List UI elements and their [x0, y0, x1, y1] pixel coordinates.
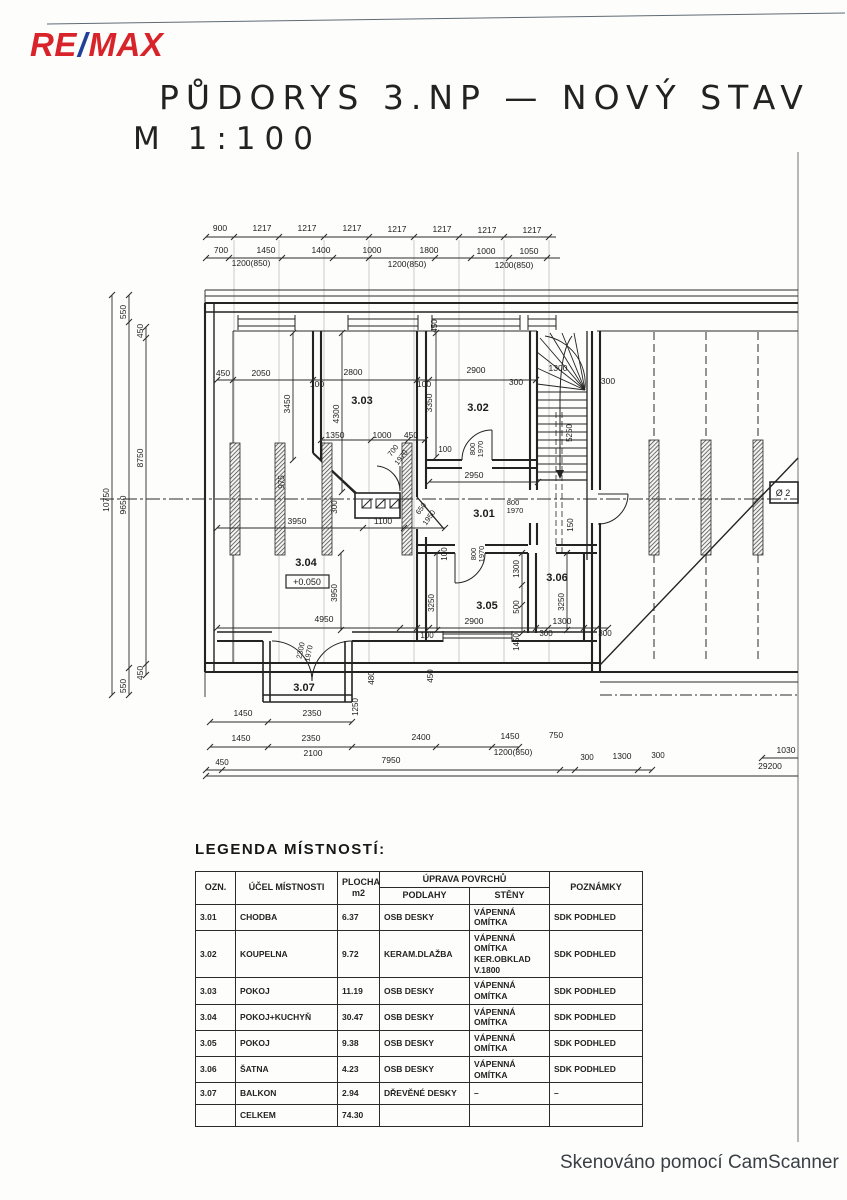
dim-label: 1217 [343, 223, 362, 233]
dim-label: 975 [277, 475, 286, 489]
col-header-uprava: ÚPRAVA POVRCHŮ [380, 872, 550, 888]
table-cell: 30.47 [338, 1004, 380, 1030]
dim-label: 1200(850) [494, 747, 533, 757]
table-row: 3.02KOUPELNA9.72KERAM.DLAŽBAVÁPENNÁ OMÍT… [196, 930, 643, 978]
dim-label: 1217 [523, 225, 542, 235]
dim-label: 1300 [512, 560, 521, 578]
table-row: CELKEM74.30 [196, 1105, 643, 1127]
room-label: 3.07 [293, 682, 314, 694]
table-cell: VÁPENNÁ OMÍTKA KER.OBKLAD V.1800 [470, 930, 550, 978]
room-label: 3.06 [546, 572, 567, 584]
dim-label: 300 [651, 751, 665, 760]
dim-label: +0.050 [293, 577, 321, 587]
dim-label: 2350 [302, 733, 321, 743]
col-header-poznamky: POZNÁMKY [550, 872, 643, 905]
room-label: 3.04 [295, 557, 317, 569]
dim-label: 450 [404, 430, 418, 440]
dim-label: 550 [118, 305, 128, 319]
dim-label: 300 [330, 500, 339, 514]
table-cell: BALKON [236, 1083, 338, 1105]
dim-label: 1350 [326, 430, 345, 440]
table-cell: 6.37 [338, 904, 380, 930]
dim-label: 450 [216, 368, 230, 378]
dim-label: 1970 [507, 506, 524, 515]
table-cell: OSB DESKY [380, 1057, 470, 1083]
room-label: 3.02 [467, 402, 488, 414]
dim-label: 450 [426, 669, 435, 683]
dim-label: 1200(850) [232, 258, 271, 268]
room-label: 3.03 [351, 395, 372, 407]
table-cell: SDK PODHLED [550, 930, 643, 978]
table-cell: 3.07 [196, 1083, 236, 1105]
table-cell [196, 1105, 236, 1127]
table-cell: POKOJ [236, 1030, 338, 1056]
legend-table: OZN. ÚČEL MÍSTNOSTI PLOCHA m2 ÚPRAVA POV… [195, 871, 643, 1127]
dim-label: 300 [598, 629, 612, 638]
dim-label: 100 [420, 631, 434, 640]
dim-label: 1000 [363, 245, 382, 255]
dim-label: 3350 [424, 393, 434, 412]
dim-label: 1217 [433, 224, 452, 234]
col-header-ozn: OZN. [196, 872, 236, 905]
dim-label: 300 [601, 376, 615, 386]
table-cell: 3.03 [196, 978, 236, 1004]
table-cell: POKOJ+KUCHYŇ [236, 1004, 338, 1030]
table-cell: VÁPENNÁ OMÍTKA [470, 1057, 550, 1083]
dim-label: 450 [135, 324, 145, 338]
table-cell: VÁPENNÁ OMÍTKA [470, 978, 550, 1004]
room-label: 3.05 [476, 600, 497, 612]
table-cell: OSB DESKY [380, 904, 470, 930]
table-cell: 3.01 [196, 904, 236, 930]
col-header-podlahy: PODLAHY [380, 888, 470, 904]
dim-label: 1030 [777, 745, 796, 755]
dim-label: 3950 [330, 584, 339, 602]
dim-label: 2900 [465, 616, 484, 626]
table-cell: SDK PODHLED [550, 978, 643, 1004]
table-cell: CELKEM [236, 1105, 338, 1127]
table-cell: SDK PODHLED [550, 1057, 643, 1083]
dim-label: 300 [580, 753, 594, 762]
table-cell: OSB DESKY [380, 1004, 470, 1030]
dim-label: 2050 [252, 368, 271, 378]
dim-label: 4300 [331, 404, 341, 423]
table-cell: 2.94 [338, 1083, 380, 1105]
dim-label: 450 [215, 758, 229, 767]
dim-label: 1970 [476, 441, 485, 458]
dim-label: 100 [438, 445, 452, 454]
table-cell: POKOJ [236, 978, 338, 1004]
table-cell: VÁPENNÁ OMÍTKA [470, 1030, 550, 1056]
table-cell: OSB DESKY [380, 1030, 470, 1056]
dim-label: 29200 [758, 761, 782, 771]
right-section-lines [600, 458, 798, 695]
dim-label: 100 [417, 379, 431, 389]
table-cell: SDK PODHLED [550, 904, 643, 930]
dim-label: 1300 [549, 363, 568, 373]
table-cell: SDK PODHLED [550, 1030, 643, 1056]
dim-label: 10750 [101, 488, 111, 512]
col-header-ucel: ÚČEL MÍSTNOSTI [236, 872, 338, 905]
table-cell: – [470, 1083, 550, 1105]
dim-label: 750 [549, 730, 563, 740]
dim-label: 8750 [135, 448, 145, 467]
dim-label: 1450 [232, 733, 251, 743]
table-cell: 4.23 [338, 1057, 380, 1083]
table-row: 3.03POKOJ11.19OSB DESKYVÁPENNÁ OMÍTKASDK… [196, 978, 643, 1004]
dim-label: 900 [213, 223, 227, 233]
table-row: 3.07BALKON2.94DŘEVĚNÉ DESKY–– [196, 1083, 643, 1105]
dim-label: 1217 [298, 223, 317, 233]
dim-label: 2900 [467, 365, 486, 375]
dim-label: 1050 [520, 246, 539, 256]
table-cell: CHODBA [236, 904, 338, 930]
dim-label: 2950 [465, 470, 484, 480]
dim-label: 3450 [282, 394, 292, 413]
room-label: 3.01 [473, 508, 494, 520]
dim-label: 1400 [312, 245, 331, 255]
dim-label: 150 [566, 518, 575, 532]
table-cell: 3.04 [196, 1004, 236, 1030]
table-cell: 3.06 [196, 1057, 236, 1083]
dim-label: 1450 [234, 708, 253, 718]
dim-label: 500 [512, 600, 521, 614]
table-cell: ŠATNA [236, 1057, 338, 1083]
dim-label: 1200(850) [388, 259, 427, 269]
dim-label: 1250 [351, 698, 360, 716]
dim-label: 450 [135, 666, 145, 680]
dim-label: 100 [310, 379, 324, 389]
dim-label: 550 [118, 679, 128, 693]
dim-label: 100 [440, 547, 449, 561]
table-cell [470, 1105, 550, 1127]
chimney-block [355, 493, 400, 518]
dim-label: 1450 [512, 633, 521, 651]
table-row: 3.06ŠATNA4.23OSB DESKYVÁPENNÁ OMÍTKASDK … [196, 1057, 643, 1083]
legend-block: LEGENDA MÍSTNOSTÍ: OZN. ÚČEL MÍSTNOSTI P… [195, 841, 647, 1127]
table-cell: 9.38 [338, 1030, 380, 1056]
dim-label: 1217 [388, 224, 407, 234]
table-cell: KOUPELNA [236, 930, 338, 978]
dim-label: 1800 [420, 245, 439, 255]
table-cell: KERAM.DLAŽBA [380, 930, 470, 978]
dim-label: 1300 [613, 751, 632, 761]
dim-label: 2350 [303, 708, 322, 718]
table-cell: VÁPENNÁ OMÍTKA [470, 1004, 550, 1030]
table-cell [550, 1105, 643, 1127]
dim-label: 300 [509, 377, 523, 387]
table-cell: DŘEVĚNÉ DESKY [380, 1083, 470, 1105]
dim-label: 1000 [373, 430, 392, 440]
table-cell: 3.05 [196, 1030, 236, 1056]
dim-label: 1217 [478, 225, 497, 235]
scanned-floorplan-page: { "header": { "logo_re": "RE", "logo_sla… [0, 0, 847, 1200]
dim-label: 700 [214, 245, 228, 255]
table-cell: 74.30 [338, 1105, 380, 1127]
dim-label: 450 [430, 319, 439, 333]
dim-label: 1000 [477, 246, 496, 256]
dim-label: 1217 [253, 223, 272, 233]
dim-label: 9650 [118, 495, 128, 514]
dim-label: 3250 [427, 594, 436, 612]
dim-label: 300 [539, 629, 553, 638]
table-cell: 9.72 [338, 930, 380, 978]
table-cell [380, 1105, 470, 1127]
table-cell: 3.02 [196, 930, 236, 978]
dim-label: 2800 [344, 367, 363, 377]
dim-label: 1200(850) [495, 260, 534, 270]
camscanner-note: Skenováno pomocí CamScanner [560, 1152, 839, 1174]
dim-label: 3950 [288, 516, 307, 526]
dimension-chains [109, 234, 798, 779]
legend-heading: LEGENDA MÍSTNOSTÍ: [195, 841, 647, 858]
dim-label: 480 [367, 671, 376, 685]
col-header-plocha: PLOCHA m2 [338, 872, 380, 905]
dim-label: 1970 [477, 546, 486, 563]
dim-label: 3250 [557, 593, 566, 611]
table-cell: – [550, 1083, 643, 1105]
dim-label: Ø 2 [776, 488, 791, 498]
dim-label: 2400 [412, 732, 431, 742]
masonry-columns [230, 440, 763, 555]
dim-label: 1450 [257, 245, 276, 255]
table-row: 3.05POKOJ9.38OSB DESKYVÁPENNÁ OMÍTKASDK … [196, 1030, 643, 1056]
dim-label: 1450 [501, 731, 520, 741]
dim-label: 1100 [374, 516, 393, 526]
dim-label: 5250 [565, 424, 574, 442]
col-header-steny: STĚNY [470, 888, 550, 904]
dim-label: 1300 [553, 616, 572, 626]
table-cell: VÁPENNÁ OMÍTKA [470, 904, 550, 930]
dim-label: 7950 [382, 755, 401, 765]
dim-label: 2100 [304, 748, 323, 758]
table-cell: OSB DESKY [380, 978, 470, 1004]
table-cell: 11.19 [338, 978, 380, 1004]
table-cell: SDK PODHLED [550, 1004, 643, 1030]
dim-label: 4950 [315, 614, 334, 624]
table-row: 3.01CHODBA6.37OSB DESKYVÁPENNÁ OMÍTKASDK… [196, 904, 643, 930]
table-row: 3.04POKOJ+KUCHYŇ30.47OSB DESKYVÁPENNÁ OM… [196, 1004, 643, 1030]
